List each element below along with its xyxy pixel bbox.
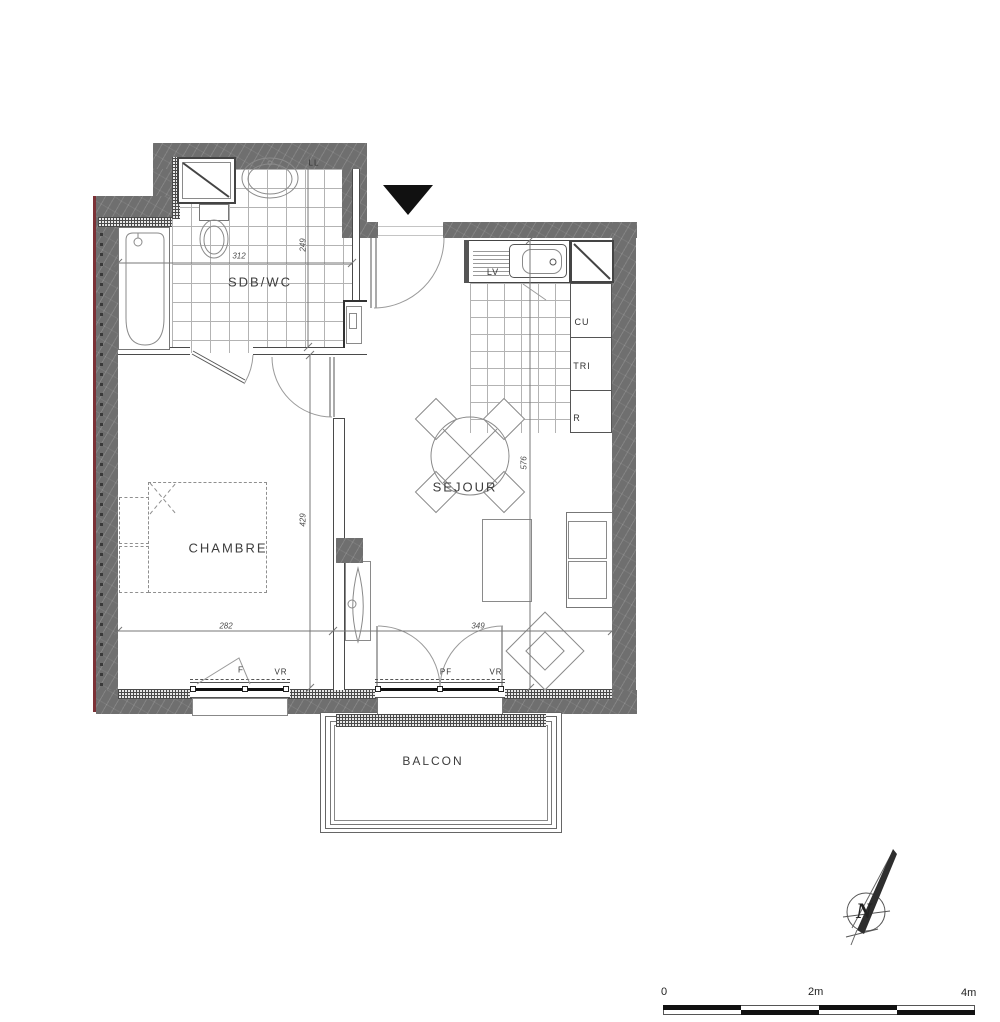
living-shutter-label: VR <box>489 668 502 677</box>
balcony-rail-4 <box>334 725 548 821</box>
entrance-threshold <box>378 226 443 236</box>
bathtub <box>118 227 170 350</box>
dim-bedroom-width: 282 <box>219 622 232 631</box>
cabinet-divider-2 <box>570 390 612 391</box>
balcony-label: BALCON <box>402 754 463 768</box>
bedroom-door <box>272 357 334 417</box>
sideboard <box>345 561 371 641</box>
insulation-bottom-1 <box>118 689 192 699</box>
bathroom-door <box>192 351 253 384</box>
insulation-bottom-2 <box>288 689 376 699</box>
entry-door <box>371 238 444 308</box>
window-label: F <box>238 666 244 675</box>
balcony-grating <box>336 714 546 727</box>
french-window-label: PF <box>440 668 452 677</box>
bedroom-window-sash <box>194 688 286 691</box>
fridge-label: R <box>573 413 581 423</box>
shaft-inner <box>349 313 357 329</box>
kitchen-tall-unit <box>570 240 614 283</box>
living-shutter-line <box>375 679 505 680</box>
insulation-bottom-3 <box>504 689 612 699</box>
nightstand-top <box>119 497 149 544</box>
window-handle <box>283 686 289 692</box>
bedroom-window-sill <box>192 698 288 716</box>
cooktop-label: CU <box>575 317 590 327</box>
cabinet-divider-1 <box>570 337 612 338</box>
facade-accent-line <box>93 196 96 712</box>
scale-mid: 2m <box>808 986 823 998</box>
kitchen-cabinet-column <box>570 283 612 433</box>
scale-segment <box>663 1005 741 1010</box>
north-letter: N <box>856 898 872 924</box>
wall-right <box>612 222 636 714</box>
structural-block <box>336 538 363 563</box>
window-handle <box>498 686 504 692</box>
bedroom-label: CHAMBRE <box>188 541 267 556</box>
insulation-left-dots <box>100 226 103 686</box>
north-compass-icon <box>843 849 897 945</box>
balcony-threshold <box>377 698 503 714</box>
dim-bathroom-width: 312 <box>232 252 245 261</box>
sorting-label: TRI <box>573 361 591 371</box>
dishwasher-label: LV <box>487 267 499 277</box>
entrance-arrow-icon <box>383 185 433 215</box>
dining-chair <box>415 398 457 440</box>
sink-bowl <box>522 249 562 274</box>
scale-max: 4m <box>961 987 976 999</box>
window-handle <box>437 686 443 692</box>
window-handle <box>242 686 248 692</box>
living-label: SEJOUR <box>433 480 498 495</box>
partition-bathroom-right <box>352 169 360 301</box>
coffee-table <box>482 519 532 602</box>
washing-machine-label: LL <box>309 159 320 168</box>
nightstand-bottom <box>119 546 149 593</box>
kitchen-counter-cap <box>464 240 469 283</box>
insulation-step <box>98 217 172 227</box>
dim-bedroom-depth: 429 <box>299 513 308 526</box>
scale-segment <box>819 1005 897 1010</box>
washing-machine-inner <box>182 162 231 199</box>
sofa-cushion <box>568 521 607 559</box>
window-handle <box>375 686 381 692</box>
sofa-cushion <box>568 561 607 599</box>
bedroom-shutter-label: VR <box>274 668 287 677</box>
wall-kitchen-top <box>443 222 637 238</box>
window-handle <box>190 686 196 692</box>
wall-entry-jamb <box>367 222 378 238</box>
scale-segment <box>741 1010 819 1015</box>
bedroom-shutter-line <box>190 679 290 680</box>
dim-living-depth: 576 <box>520 456 529 469</box>
partition-bathroom-bottom-right <box>253 347 367 355</box>
floor-plan: SDB/WC CHAMBRE SEJOUR BALCON LL LV CU TR… <box>0 0 1000 1022</box>
toilet-tank <box>199 204 229 221</box>
bathroom-label: SDB/WC <box>228 275 292 290</box>
scale-segment <box>897 1010 975 1015</box>
dim-bathroom-depth: 249 <box>299 238 308 251</box>
dim-living-width: 349 <box>471 622 484 631</box>
bed <box>148 482 267 593</box>
scale-zero: 0 <box>661 986 667 998</box>
